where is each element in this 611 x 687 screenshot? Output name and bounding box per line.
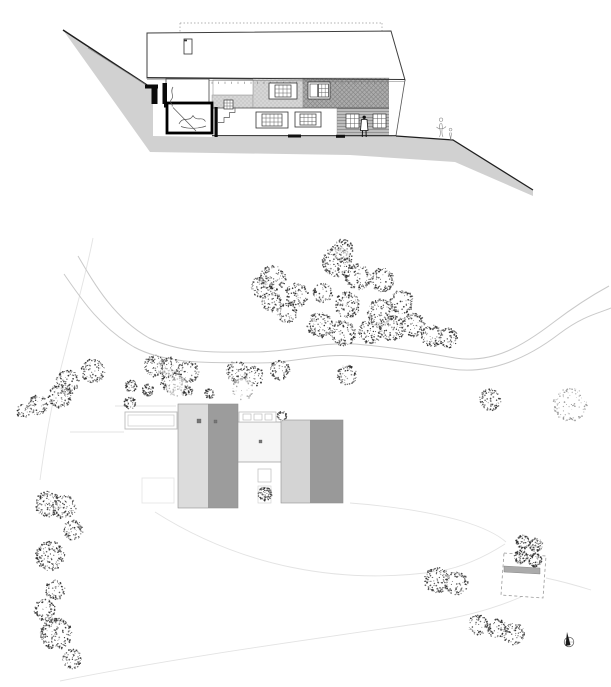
tree-symbol (438, 327, 458, 348)
window-glazing (346, 114, 359, 128)
tree-symbol (330, 320, 356, 346)
person-body (361, 120, 369, 131)
tree-symbol (370, 268, 394, 292)
roof-plane-right-light (281, 420, 310, 503)
window-sash (310, 84, 318, 97)
lap-pool (125, 412, 177, 429)
tree-symbol (337, 365, 357, 386)
window-glazing (373, 114, 386, 128)
tree-symbol (306, 312, 332, 338)
sketch-figure (437, 123, 447, 137)
retaining-wall (152, 87, 158, 104)
tree-symbol (34, 599, 56, 622)
sketch-figure (450, 133, 452, 141)
footpath (350, 503, 506, 542)
corridor-wall (218, 107, 253, 136)
window (346, 114, 359, 128)
tree-symbol (479, 388, 501, 411)
sketch-figure (449, 128, 452, 131)
north-arrow-icon (564, 632, 574, 647)
tree-symbol (313, 283, 334, 303)
tree-symbol (142, 384, 154, 397)
tree-symbol (16, 404, 30, 418)
tree-symbol (389, 290, 413, 314)
foundation-wall (215, 107, 218, 137)
tree-symbol (514, 550, 529, 565)
tree-symbol (81, 359, 106, 383)
cut-wall (163, 83, 168, 104)
sketch-figure (439, 118, 443, 122)
tree-symbol (504, 623, 525, 645)
roof (147, 31, 405, 80)
tree-symbol (270, 360, 290, 381)
window (295, 112, 321, 127)
window-glazing (262, 114, 282, 126)
site-plan (16, 238, 611, 681)
tree-symbol (529, 537, 543, 552)
window-glazing (224, 100, 233, 109)
chimney-dot (259, 440, 262, 443)
tree-symbol (277, 411, 288, 421)
upper-opening (213, 80, 253, 95)
terrace-outline (142, 478, 174, 503)
tree-symbol (63, 519, 83, 540)
roof-plane-left-light (178, 404, 208, 508)
building-section (63, 23, 533, 196)
tree-symbol (28, 395, 48, 416)
window (308, 82, 330, 99)
tree-symbol (204, 388, 215, 398)
skylight (254, 414, 262, 420)
tree-symbol (469, 615, 489, 636)
roof-plane-right-dark (310, 420, 343, 503)
footpath (40, 238, 93, 480)
tree-symbol (553, 388, 588, 421)
window (373, 114, 386, 128)
window (256, 112, 288, 128)
footpath (155, 512, 505, 576)
tree-symbol (125, 380, 138, 392)
tree-symbol (45, 579, 65, 600)
window (269, 83, 297, 99)
skylight (243, 414, 251, 420)
footpath (546, 578, 591, 590)
drawing-sheet (0, 0, 611, 687)
tree-symbol (515, 535, 530, 550)
window-glazing (319, 84, 329, 97)
tree-symbol (444, 572, 468, 596)
architectural-drawing (0, 0, 611, 687)
chimney-dot (214, 420, 217, 423)
person-head (363, 116, 366, 119)
chimney-dot (197, 419, 201, 423)
courtyard-square (258, 469, 271, 482)
roof-plane-left-dark (208, 404, 238, 508)
tree-symbol (62, 649, 82, 670)
base-mark (288, 135, 301, 138)
tree-symbol (232, 378, 253, 400)
tree-symbol (40, 618, 72, 650)
footpath (60, 597, 521, 681)
tree-symbol (335, 291, 360, 318)
base-mark (336, 135, 345, 138)
window (224, 100, 233, 109)
tree-symbol (379, 315, 405, 341)
skylight (265, 414, 272, 420)
tree-symbol (35, 541, 65, 571)
tree-symbol (124, 397, 137, 410)
tree-symbol (528, 552, 542, 567)
